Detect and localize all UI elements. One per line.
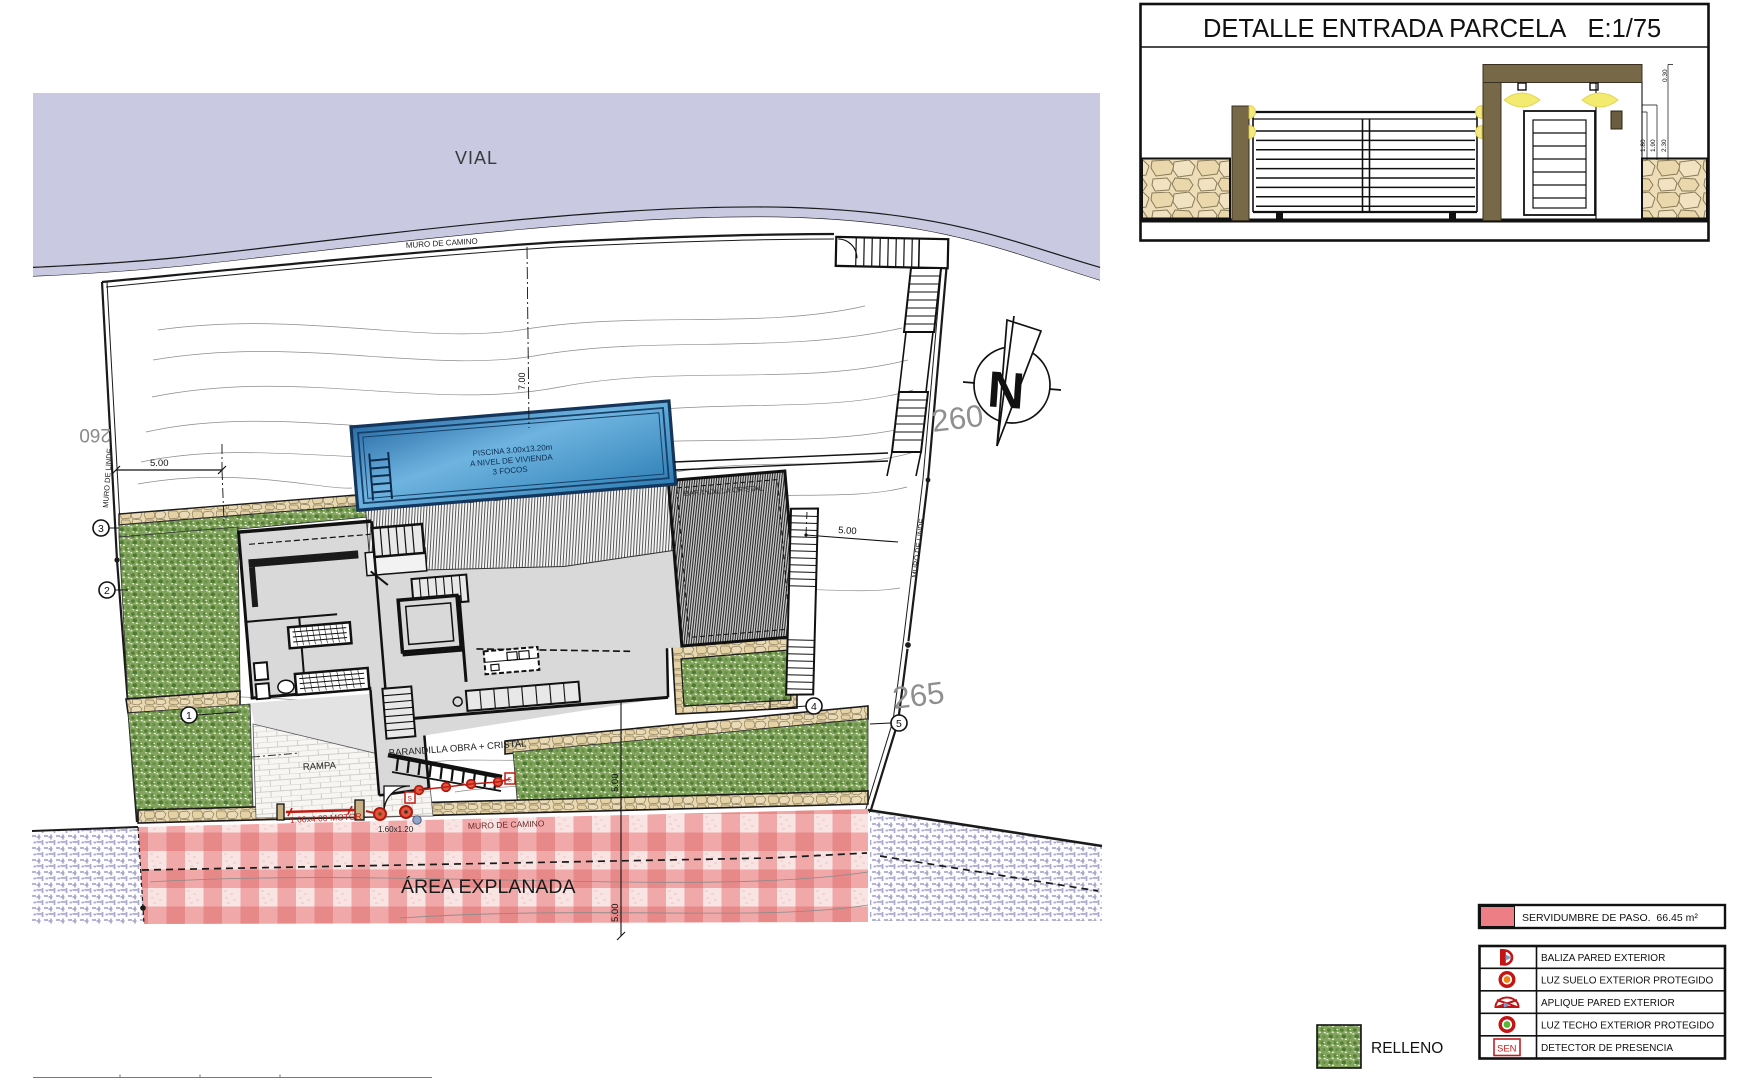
svg-text:265: 265 xyxy=(891,675,947,716)
svg-text:5: 5 xyxy=(896,718,902,730)
svg-text:APLIQUE PARED EXTERIOR: APLIQUE PARED EXTERIOR xyxy=(1541,998,1675,1009)
svg-text:DETECTOR DE PRESENCIA: DETECTOR DE PRESENCIA xyxy=(1541,1043,1673,1054)
svg-text:5.00: 5.00 xyxy=(610,904,621,923)
svg-text:4: 4 xyxy=(811,701,817,713)
svg-text:0.30: 0.30 xyxy=(1662,69,1669,82)
svg-text:5.00: 5.00 xyxy=(150,458,169,469)
svg-text:2.30: 2.30 xyxy=(1661,139,1668,152)
svg-text:3: 3 xyxy=(98,523,104,535)
svg-text:SEN: SEN xyxy=(1497,1044,1517,1055)
svg-text:1.90: 1.90 xyxy=(1650,139,1657,152)
svg-text:VIAL: VIAL xyxy=(455,148,498,168)
svg-text:SERVIDUMBRE DE PASO. 66.45 m²: SERVIDUMBRE DE PASO. 66.45 m² xyxy=(1522,912,1698,924)
svg-text:260: 260 xyxy=(79,424,111,445)
svg-text:S: S xyxy=(408,796,413,803)
svg-text:DETALLE ENTRADA PARCELA E:1/: DETALLE ENTRADA PARCELA E:1/75 xyxy=(1203,15,1661,43)
svg-text:1: 1 xyxy=(186,710,192,722)
svg-text:1.80: 1.80 xyxy=(1640,139,1647,152)
svg-text:ÁREA EXPLANADA: ÁREA EXPLANADA xyxy=(401,875,576,898)
svg-text:RAMPA: RAMPA xyxy=(303,760,337,773)
svg-text:RELLENO: RELLENO xyxy=(1371,1040,1443,1057)
svg-text:5.00: 5.00 xyxy=(610,774,621,793)
svg-text:LUZ SUELO EXTERIOR PROTEGIDO: LUZ SUELO EXTERIOR PROTEGIDO xyxy=(1541,976,1713,987)
svg-text:7.00: 7.00 xyxy=(517,372,527,390)
svg-text:N: N xyxy=(986,360,1027,419)
svg-text:1.60x1.20: 1.60x1.20 xyxy=(378,825,414,834)
svg-text:2: 2 xyxy=(104,585,110,597)
svg-text:5.00: 5.00 xyxy=(838,525,857,537)
svg-text:LUZ TECHO EXTERIOR PROTEGIDO: LUZ TECHO EXTERIOR PROTEGIDO xyxy=(1541,1021,1714,1032)
svg-text:BALIZA PARED EXTERIOR: BALIZA PARED EXTERIOR xyxy=(1541,953,1665,964)
svg-text:260: 260 xyxy=(930,398,986,439)
